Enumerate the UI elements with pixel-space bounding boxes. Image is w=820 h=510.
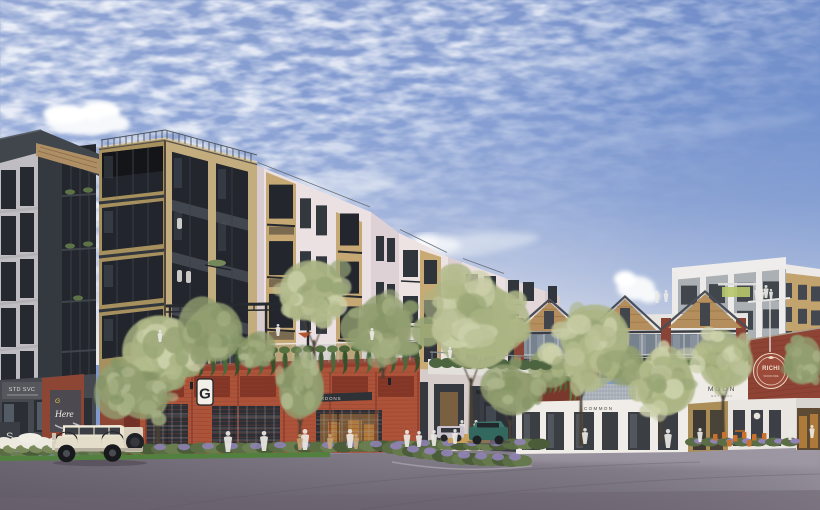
svg-text:G: G: [199, 386, 211, 403]
svg-text:G: G: [55, 398, 60, 405]
svg-text:STD SVC: STD SVC: [9, 387, 36, 393]
svg-text:RICHI: RICHI: [762, 366, 780, 372]
svg-text:WOOD FIRE: WOOD FIRE: [764, 374, 779, 378]
svg-text:Here: Here: [54, 410, 74, 420]
svg-text:COMMON: COMMON: [584, 406, 613, 411]
